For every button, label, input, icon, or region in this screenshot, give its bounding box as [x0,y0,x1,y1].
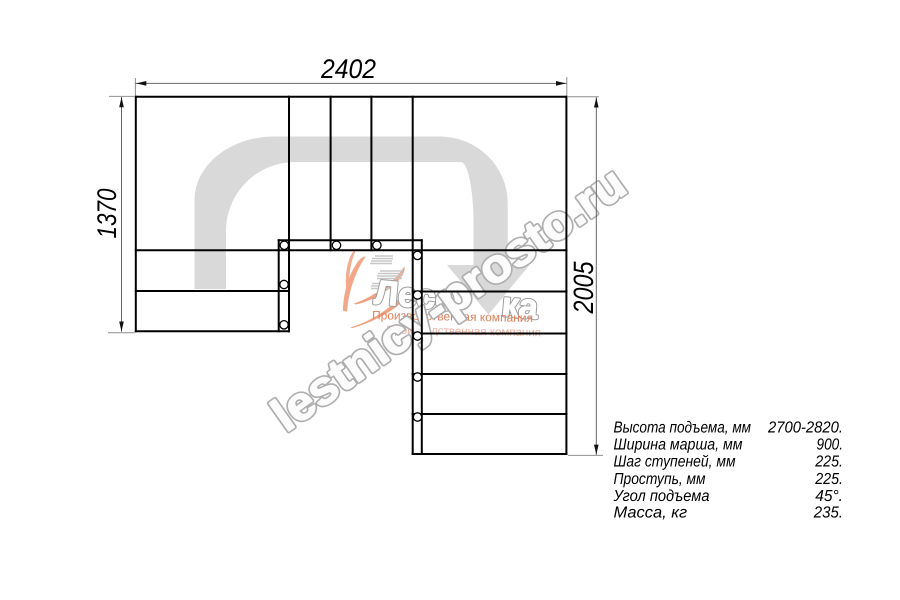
svg-text:Ширина марша, мм: Ширина марша, мм [614,437,743,454]
svg-text:225.: 225. [814,471,843,488]
svg-text:1370: 1370 [92,189,122,239]
svg-text:900.: 900. [817,437,844,454]
svg-text:2700-2820.: 2700-2820. [767,420,843,437]
svg-text:2005: 2005 [568,261,599,314]
svg-text:45°.: 45°. [815,488,843,505]
svg-text:Шаг ступеней, мм: Шаг ступеней, мм [614,454,736,471]
svg-text:2402: 2402 [320,54,376,84]
svg-text:Проступь, мм: Проступь, мм [614,471,706,488]
svg-text:Масса, кг: Масса, кг [614,505,688,522]
svg-text:Угол подъема: Угол подъема [613,488,710,505]
svg-text:Высота подъема, мм: Высота подъема, мм [614,420,752,437]
svg-text:235.: 235. [813,505,843,522]
svg-text:225.: 225. [814,454,843,471]
